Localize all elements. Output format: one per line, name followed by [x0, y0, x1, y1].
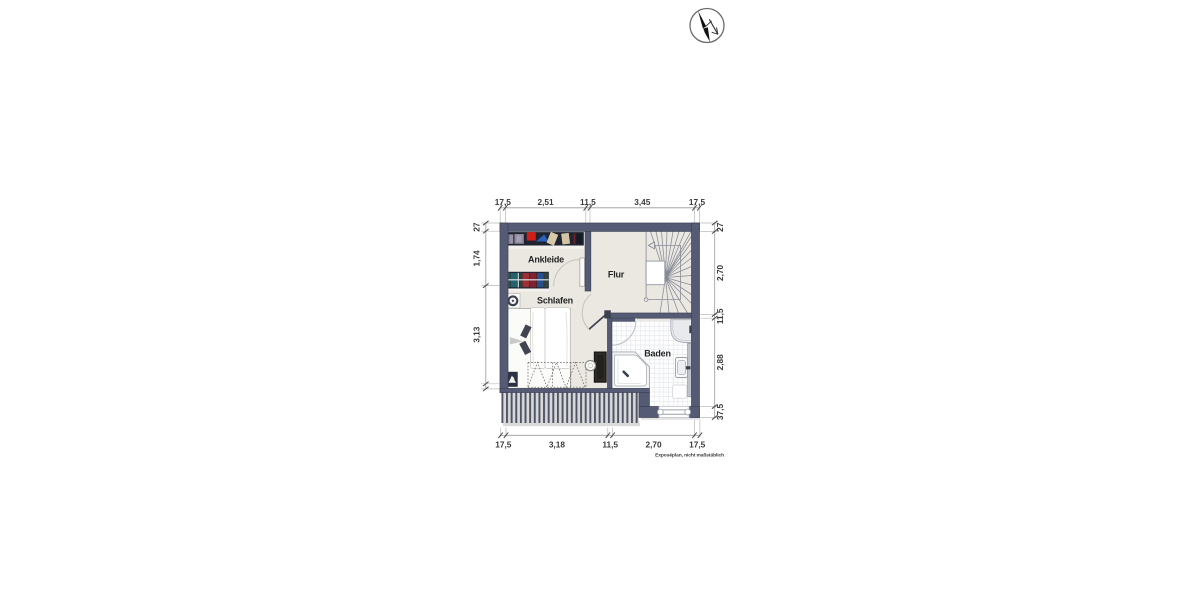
- svg-text:Baden: Baden: [644, 349, 671, 359]
- svg-text:37,5: 37,5: [715, 404, 725, 421]
- svg-text:17,5: 17,5: [495, 440, 512, 450]
- svg-text:Schlafen: Schlafen: [537, 296, 573, 306]
- svg-text:17,5: 17,5: [689, 197, 706, 207]
- svg-text:2,51: 2,51: [538, 197, 555, 207]
- svg-text:11,5: 11,5: [602, 440, 618, 450]
- svg-text:17,5: 17,5: [495, 197, 512, 207]
- svg-text:11,5: 11,5: [580, 197, 596, 207]
- svg-text:17,5: 17,5: [689, 440, 706, 450]
- svg-text:2,70: 2,70: [715, 264, 725, 281]
- svg-text:27: 27: [471, 222, 481, 232]
- svg-text:2,88: 2,88: [715, 354, 725, 371]
- svg-text:Flur: Flur: [608, 269, 625, 279]
- svg-text:1,74: 1,74: [471, 250, 481, 267]
- svg-text:3,45: 3,45: [634, 197, 651, 207]
- svg-text:27: 27: [715, 222, 725, 232]
- svg-text:Ankleide: Ankleide: [528, 254, 564, 264]
- svg-text:11,5: 11,5: [715, 308, 725, 324]
- svg-text:Exposéplan, nicht maßstäblich: Exposéplan, nicht maßstäblich: [655, 452, 724, 458]
- svg-text:3,13: 3,13: [471, 326, 481, 343]
- svg-text:2,70: 2,70: [646, 440, 663, 450]
- svg-text:3,18: 3,18: [549, 440, 566, 450]
